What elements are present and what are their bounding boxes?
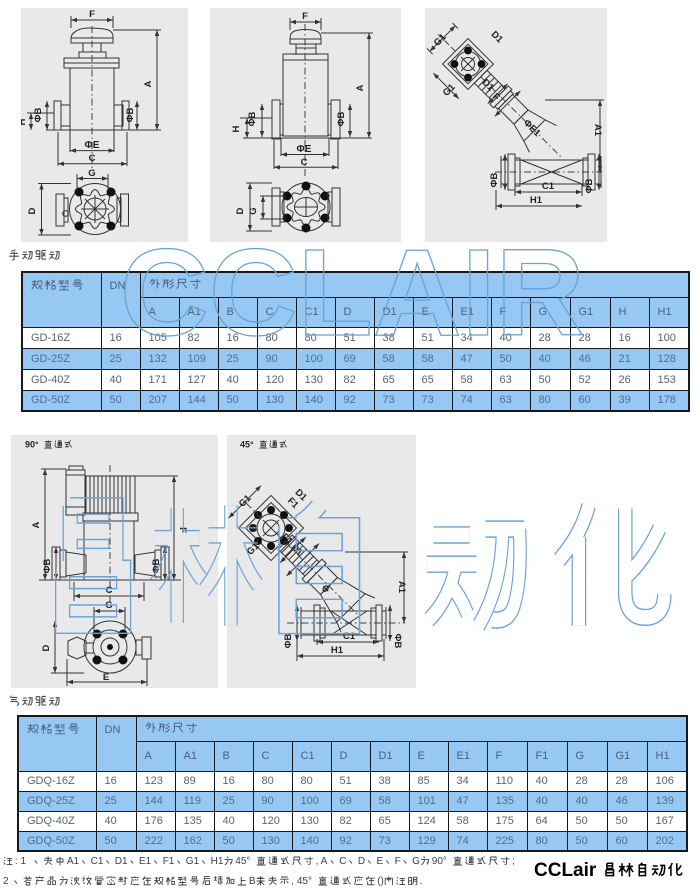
svg-text:90°: 90°	[25, 439, 39, 449]
svg-text:E: E	[103, 672, 109, 683]
svg-text:C: C	[106, 585, 113, 596]
svg-text:G: G	[88, 168, 95, 179]
svg-text:E1: E1	[139, 856, 152, 867]
svg-text:C: C	[339, 856, 346, 867]
svg-text:A1: A1	[396, 581, 407, 594]
svg-text:G1: G1	[186, 856, 200, 867]
svg-text:2: 2	[3, 876, 9, 887]
svg-text:D: D	[235, 207, 246, 214]
svg-text:H: H	[21, 118, 28, 125]
svg-text:ΦB: ΦB	[283, 634, 294, 649]
svg-text:ΦB: ΦB	[584, 179, 595, 194]
svg-text:C1: C1	[91, 856, 104, 867]
svg-text:F: F	[177, 527, 188, 533]
svg-text:ΦE: ΦE	[85, 140, 100, 151]
svg-text:B: B	[249, 876, 256, 887]
svg-text:H1: H1	[331, 645, 344, 656]
svg-text:G: G	[412, 856, 420, 867]
svg-text:D: D	[41, 644, 52, 651]
svg-text:ΦB: ΦB	[151, 559, 162, 574]
svg-text:, A: , A	[316, 856, 328, 867]
svg-text:D1: D1	[115, 856, 128, 867]
svg-text:F: F	[89, 9, 95, 20]
svg-text:A1: A1	[592, 124, 603, 137]
svg-text:G: G	[105, 600, 112, 611]
svg-text:, 45°: , 45°	[291, 876, 312, 887]
svg-text:C1: C1	[343, 631, 356, 642]
svg-text:;: ;	[512, 856, 515, 867]
svg-text:F1: F1	[163, 856, 175, 867]
svg-text:90°: 90°	[432, 856, 447, 867]
svg-text:H: H	[231, 125, 242, 132]
svg-text:45°: 45°	[240, 439, 254, 449]
svg-text:ΦE: ΦE	[297, 144, 312, 155]
svg-text:ΦB: ΦB	[33, 108, 44, 123]
svg-text:45°: 45°	[235, 856, 250, 867]
svg-text:ΦB: ΦB	[489, 173, 500, 188]
svg-text:D: D	[358, 856, 365, 867]
svg-text:ΦB: ΦB	[336, 112, 347, 127]
svg-text:H1: H1	[211, 856, 224, 867]
svg-text:A1: A1	[67, 856, 80, 867]
svg-text:: 1: : 1	[15, 856, 27, 867]
svg-text:(): ()	[377, 876, 384, 887]
svg-text:ΦB: ΦB	[125, 108, 136, 123]
svg-text:A: A	[355, 84, 366, 91]
svg-text:ΦB: ΦB	[42, 559, 53, 574]
svg-text:C1: C1	[542, 181, 555, 192]
svg-text:C: C	[89, 153, 96, 164]
svg-text:A: A	[143, 80, 154, 87]
svg-text:A: A	[31, 521, 42, 528]
svg-text:E: E	[377, 856, 384, 867]
svg-text:H1: H1	[530, 195, 543, 206]
svg-text:.: .	[420, 876, 423, 887]
svg-text:F: F	[395, 856, 401, 867]
svg-text:D1: D1	[489, 29, 506, 46]
svg-text:C: C	[301, 157, 308, 168]
svg-text:ΦB: ΦB	[247, 112, 258, 127]
svg-text:D: D	[27, 207, 38, 214]
svg-text:ΦB: ΦB	[392, 634, 403, 649]
svg-text:F: F	[302, 11, 308, 22]
